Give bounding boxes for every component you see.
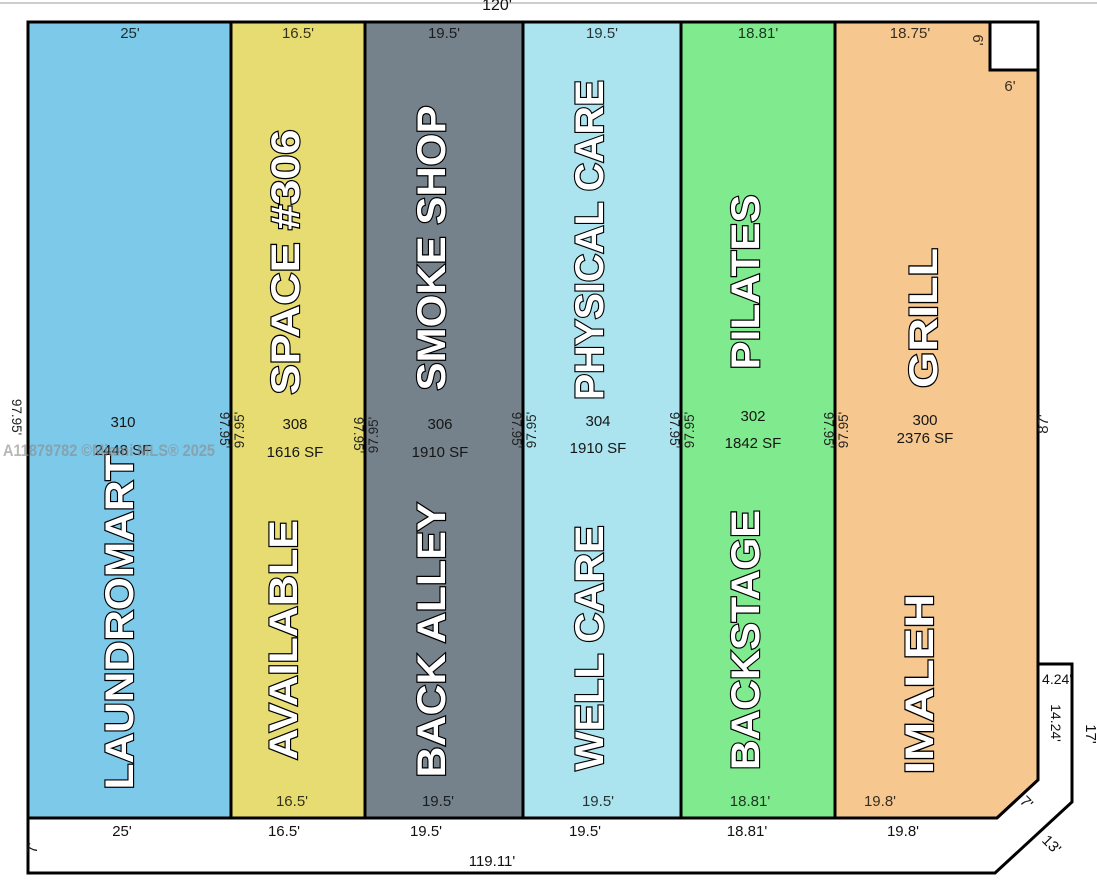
dim-top-suite-302: 18.81' bbox=[738, 25, 779, 42]
dim-top-total: 120' bbox=[482, 0, 512, 14]
suite-306-name-bottom: BACK ALLEY bbox=[410, 502, 454, 777]
dim-notch-height: 6' bbox=[969, 34, 986, 45]
dim-depth-302l: 97.95' bbox=[682, 412, 697, 448]
suite-302-name-top: PILATES bbox=[724, 195, 768, 370]
dim-bottom-308: 16.5' bbox=[268, 823, 300, 840]
suite-310-number: 310 bbox=[110, 414, 135, 431]
dim-depth-308l: 97.95' bbox=[232, 412, 247, 448]
dim-bottom-in-306: 19.5' bbox=[422, 793, 454, 810]
dim-bottom-in-302: 18.81' bbox=[730, 793, 771, 810]
suite-302-area: 1842 SF bbox=[725, 435, 782, 452]
site-plan: 120' 25' 16.5' 19.5' 19.5' 18.81' 18.75'… bbox=[0, 0, 1097, 889]
suite-304-name-bottom: WELL CARE bbox=[568, 526, 612, 771]
suite-308-number: 308 bbox=[282, 416, 307, 433]
suite-300-area: 2376 SF bbox=[897, 430, 954, 447]
dim-right-side: 87' bbox=[1035, 414, 1052, 434]
dim-depth-308r: 97.95' bbox=[351, 417, 366, 453]
dim-bottom-310: 25' bbox=[112, 823, 132, 840]
dim-depth-304r: 97.95' bbox=[667, 412, 682, 448]
dim-depth-outer-left: 97.95' bbox=[9, 399, 24, 435]
suite-300-name-bottom: IMALEH bbox=[898, 594, 942, 774]
suite-304-number: 304 bbox=[585, 413, 610, 430]
dim-parcel-corner-cut: 13' bbox=[1038, 832, 1064, 858]
dim-left-margin: 7' bbox=[24, 842, 41, 853]
suite-304-area: 1910 SF bbox=[570, 440, 627, 457]
dim-depth-310r: 97.95' bbox=[217, 412, 232, 448]
dim-top-suite-308: 16.5' bbox=[282, 25, 314, 42]
dim-depth-304l: 97.95' bbox=[524, 412, 539, 448]
dim-bottom-302: 18.81' bbox=[727, 823, 768, 840]
dim-depth-306r: 97.95' bbox=[509, 412, 524, 448]
dim-notch-width: 6' bbox=[1004, 78, 1015, 95]
suite-308-name-bottom: AVAILABLE bbox=[262, 520, 306, 760]
suite-306-number: 306 bbox=[427, 416, 452, 433]
dim-bottom-total: 119.11' bbox=[469, 853, 516, 870]
dim-depth-300l: 97.95' bbox=[836, 412, 851, 448]
suite-306-name-top: SMOKE SHOP bbox=[410, 106, 454, 391]
site-plan-drawing: 120' 25' 16.5' 19.5' 19.5' 18.81' 18.75'… bbox=[0, 0, 1097, 889]
dim-jut-top: 4.24' bbox=[1042, 671, 1072, 687]
dim-jut-side: 14.24' bbox=[1048, 704, 1064, 742]
suite-308-name-top: SPACE #306 bbox=[264, 130, 308, 395]
dim-top-suite-306: 19.5' bbox=[428, 25, 460, 42]
dim-bottom-in-308: 16.5' bbox=[276, 793, 308, 810]
suite-300-number: 300 bbox=[912, 412, 937, 429]
suite-310-name: LAUNDROMART bbox=[98, 455, 142, 790]
dim-top-suite-310: 25' bbox=[120, 25, 140, 42]
dim-bottom-in-304: 19.5' bbox=[582, 793, 614, 810]
dim-bottom-304: 19.5' bbox=[569, 823, 601, 840]
mls-watermark: A11879782 ©Miami MLS® 2025 bbox=[3, 441, 215, 460]
dim-bottom-306: 19.5' bbox=[410, 823, 442, 840]
dim-top-suite-304: 19.5' bbox=[586, 25, 618, 42]
suite-308-area: 1616 SF bbox=[267, 444, 324, 461]
dim-jut-right: 17' bbox=[1082, 724, 1097, 744]
suite-302-number: 302 bbox=[740, 408, 765, 425]
suite-300-name-top: GRILL bbox=[902, 248, 946, 388]
suite-304-name-top: PHYSICAL CARE bbox=[568, 80, 612, 400]
suite-306-area: 1910 SF bbox=[412, 444, 469, 461]
dim-bottom-300: 19.8' bbox=[887, 823, 919, 840]
dim-depth-306l: 97.95' bbox=[366, 417, 381, 453]
dim-depth-302r: 97.95' bbox=[821, 412, 836, 448]
suite-302-name-bottom: BACKSTAGE bbox=[724, 510, 768, 770]
corner-notch-shape bbox=[990, 22, 1038, 70]
dim-top-suite-300: 18.75' bbox=[890, 25, 931, 42]
dim-bottom-in-300: 19.8' bbox=[864, 793, 896, 810]
